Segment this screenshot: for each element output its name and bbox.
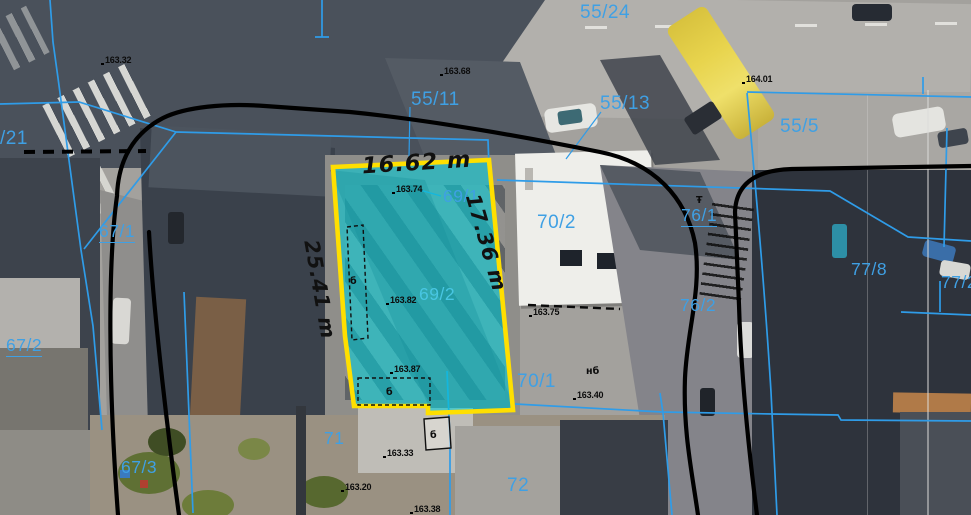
car-dark xyxy=(852,4,892,21)
bush xyxy=(300,476,348,508)
tree-dark xyxy=(148,428,186,456)
building-72-light xyxy=(455,426,563,515)
bush xyxy=(238,438,270,460)
building-orange-strip xyxy=(893,392,971,413)
fence-dark xyxy=(296,406,306,515)
building-mark-нб: нб xyxy=(586,367,599,377)
equipment-red xyxy=(140,480,148,488)
van-white xyxy=(111,298,131,345)
car-dark xyxy=(168,212,184,244)
image-seam xyxy=(867,95,868,515)
roof-left-bottom xyxy=(0,430,95,515)
elevation-label-163-40: 163.40 xyxy=(577,391,603,400)
image-seam xyxy=(927,90,929,515)
building-72-dark xyxy=(560,420,668,515)
rooftop-vent xyxy=(525,168,533,190)
truck-teal xyxy=(832,224,847,258)
roof-right-bottom xyxy=(900,412,971,515)
parcel-label-70-1: 70/1 xyxy=(517,372,556,391)
bush xyxy=(182,490,234,515)
rooftop-unit xyxy=(560,250,582,266)
elevation-label-163-75: 163.75 xyxy=(533,308,559,317)
car-dark xyxy=(700,388,715,416)
equipment-blue xyxy=(120,470,130,478)
lane-dash xyxy=(865,23,887,26)
lane-dash xyxy=(935,22,957,25)
aerial-map-canvas[interactable]: 55/2455/1155/1355/5/2167/167/267/369/169… xyxy=(0,0,971,515)
roof-left-light xyxy=(0,278,80,348)
lane-dash xyxy=(795,24,817,27)
building-dashed-line xyxy=(528,305,620,309)
lane-dash xyxy=(585,26,607,29)
roof-left-mid xyxy=(0,348,88,430)
building-brown xyxy=(190,297,246,421)
roof-central-highlight xyxy=(149,125,332,196)
